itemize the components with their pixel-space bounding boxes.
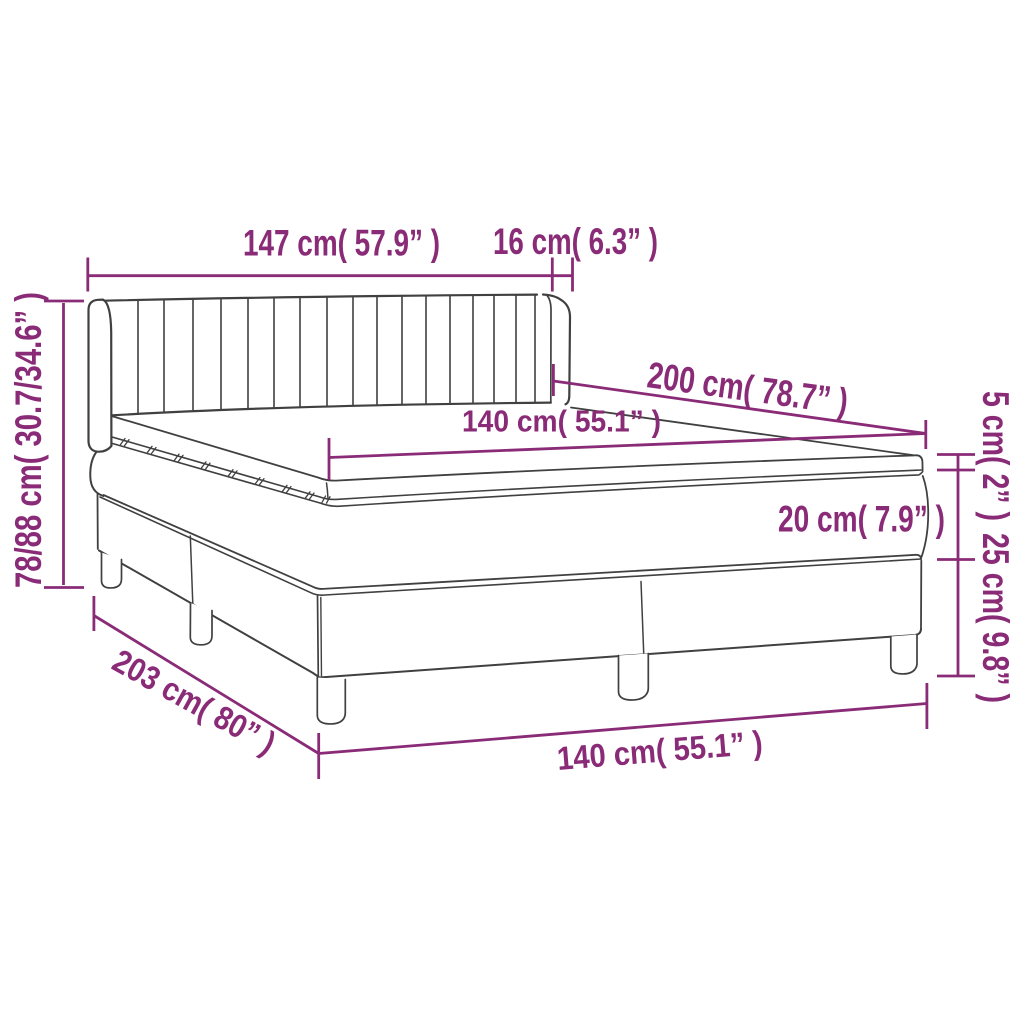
svg-text:25 cm( 9.8” ): 25 cm( 9.8” ) bbox=[975, 533, 1016, 703]
svg-text:16 cm( 6.3” ): 16 cm( 6.3” ) bbox=[493, 221, 658, 262]
svg-text:140 cm( 55.1” ): 140 cm( 55.1” ) bbox=[462, 404, 661, 439]
svg-text:147 cm( 57.9” ): 147 cm( 57.9” ) bbox=[243, 223, 440, 264]
svg-text:5 cm( 2” ): 5 cm( 2” ) bbox=[975, 391, 1016, 521]
svg-text:78/88 cm( 30.7/34.6” ): 78/88 cm( 30.7/34.6” ) bbox=[8, 292, 49, 588]
svg-text:20 cm( 7.9” ): 20 cm( 7.9” ) bbox=[778, 499, 945, 540]
